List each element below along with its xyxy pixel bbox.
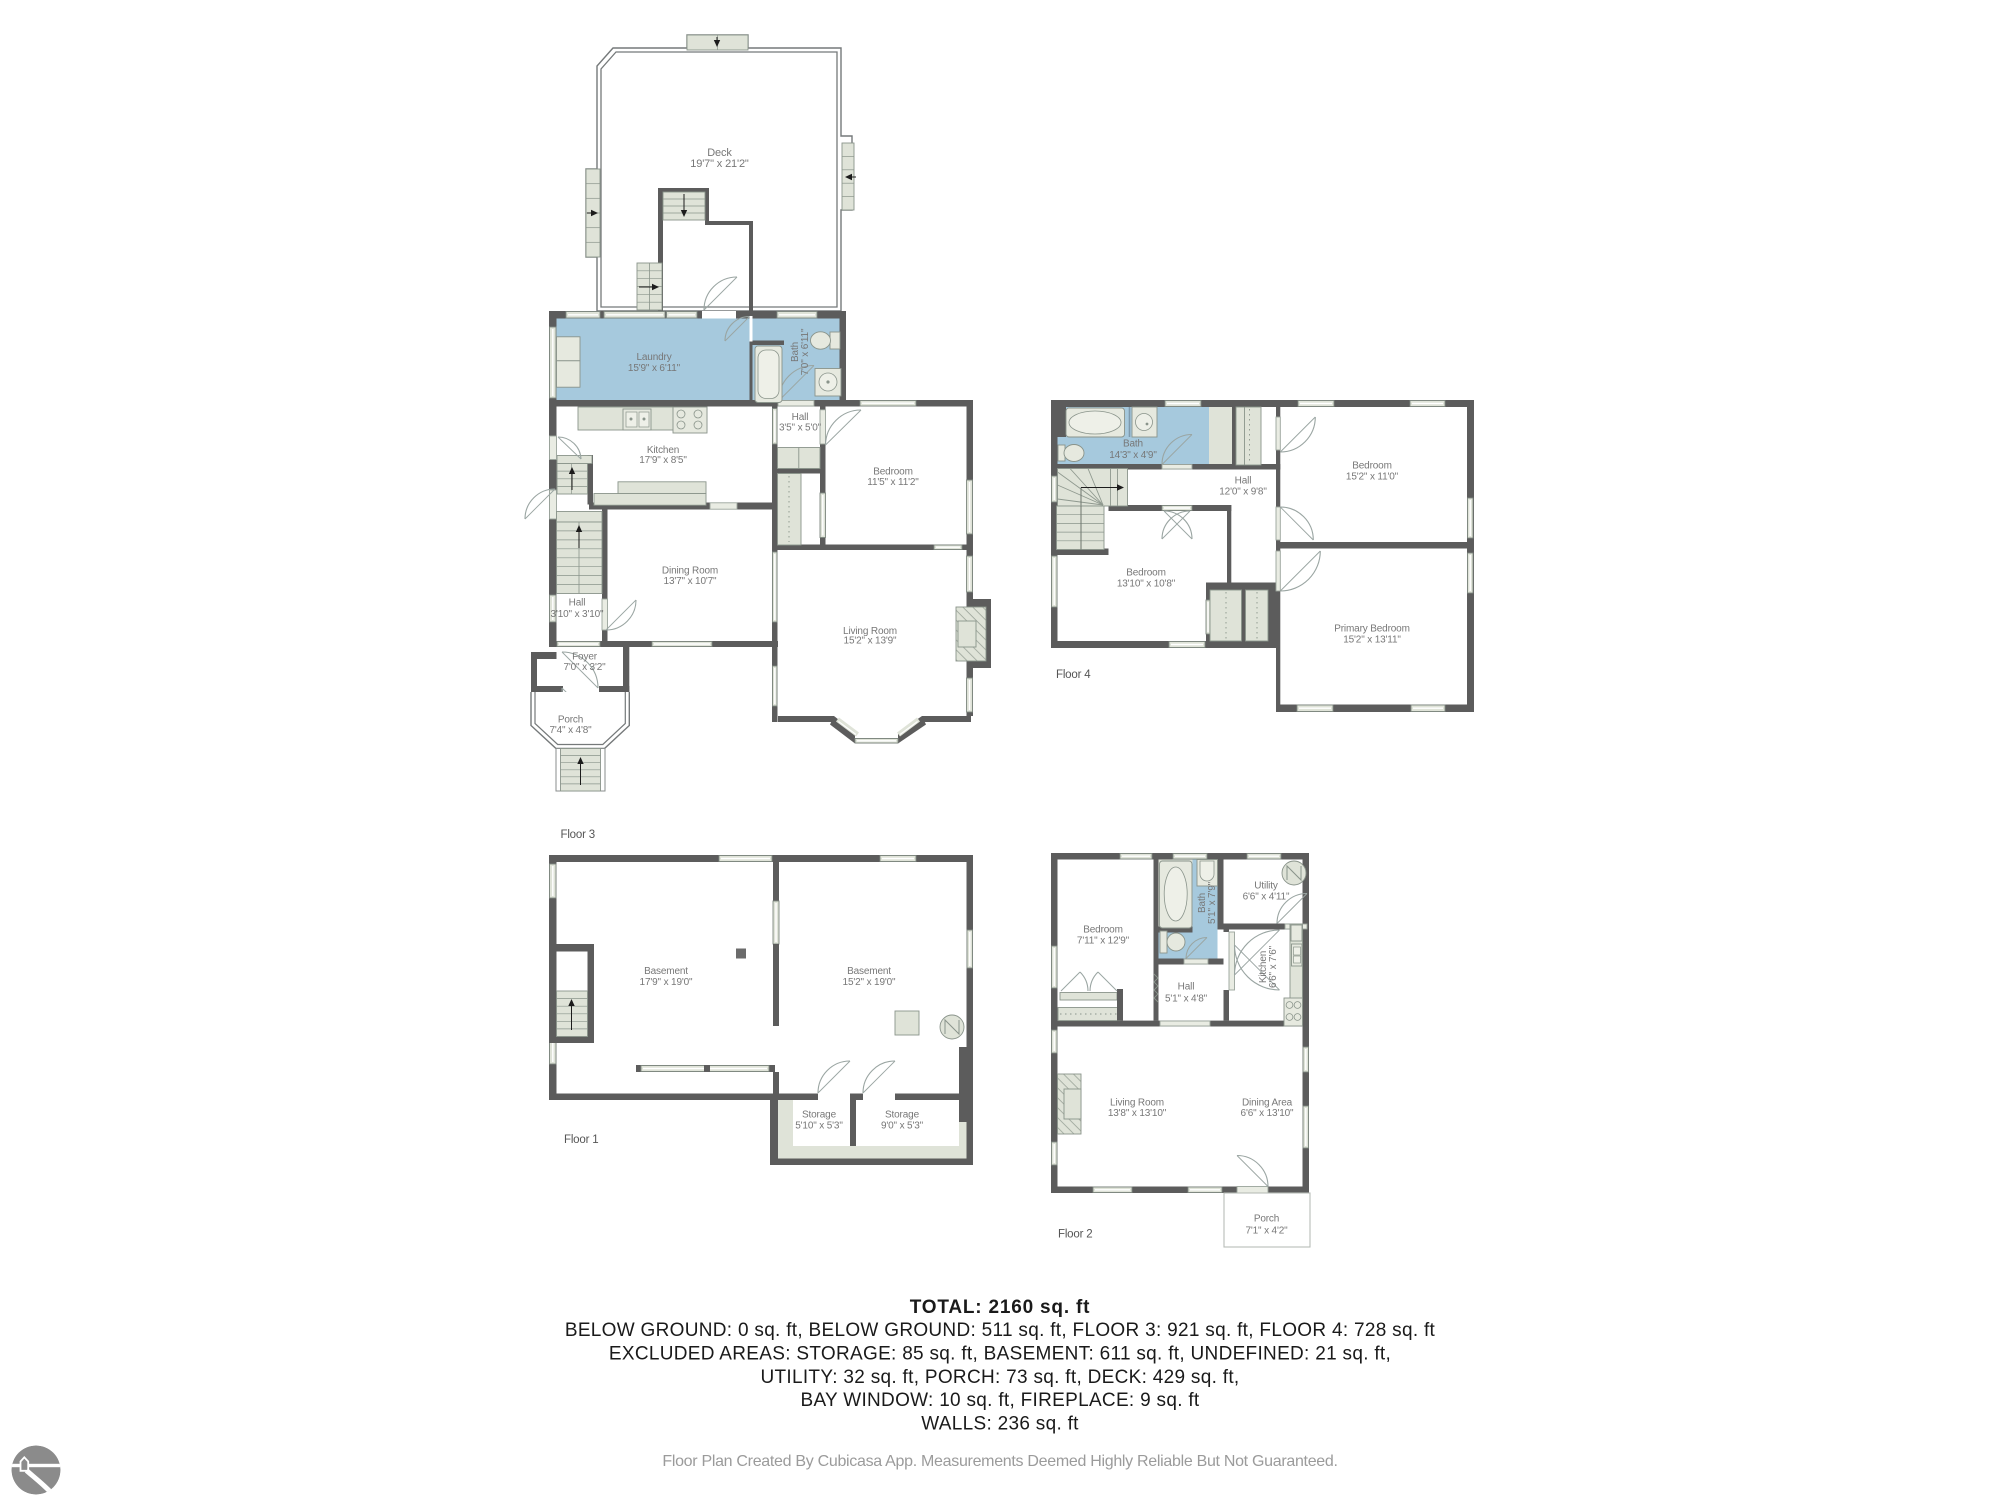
- svg-text:5'1" x 7'9": 5'1" x 7'9": [1207, 881, 1218, 924]
- svg-text:Basement: Basement: [847, 966, 891, 977]
- svg-text:7'4" x 4'8": 7'4" x 4'8": [549, 725, 592, 736]
- svg-text:14'3" x 4'9": 14'3" x 4'9": [1109, 450, 1157, 461]
- svg-text:Living Room: Living Room: [1110, 1098, 1164, 1109]
- svg-text:7'0" x 6'11": 7'0" x 6'11": [800, 328, 811, 375]
- svg-text:5'1" x 4'8": 5'1" x 4'8": [1165, 994, 1208, 1005]
- svg-text:Hall: Hall: [569, 598, 586, 609]
- svg-text:3'10" x 3'10": 3'10" x 3'10": [551, 609, 604, 620]
- svg-text:BAY WINDOW: 10 sq. ft, FIREPLA: BAY WINDOW: 10 sq. ft, FIREPLACE: 9 sq. …: [800, 1390, 1199, 1411]
- svg-text:13'7" x 10'7": 13'7" x 10'7": [664, 576, 717, 587]
- svg-text:12'0" x 9'8": 12'0" x 9'8": [1219, 487, 1267, 498]
- svg-text:Floor Plan Created By Cubicasa: Floor Plan Created By Cubicasa App. Meas…: [662, 1453, 1337, 1470]
- svg-text:7'0" x 3'2": 7'0" x 3'2": [563, 662, 606, 673]
- svg-text:Hall: Hall: [1235, 476, 1252, 487]
- svg-text:15'2" x 11'0": 15'2" x 11'0": [1346, 472, 1399, 483]
- svg-text:Primary Bedroom: Primary Bedroom: [1334, 624, 1410, 635]
- svg-text:Hall: Hall: [1178, 982, 1195, 993]
- svg-text:3'5" x 5'0": 3'5" x 5'0": [779, 423, 822, 434]
- svg-text:15'2" x 19'0": 15'2" x 19'0": [843, 977, 896, 988]
- svg-text:11'5" x 11'2": 11'5" x 11'2": [867, 477, 919, 488]
- svg-text:BELOW GROUND: 0 sq. ft, BELOW: BELOW GROUND: 0 sq. ft, BELOW GROUND: 51…: [565, 1320, 1436, 1341]
- svg-text:15'9" x 6'11": 15'9" x 6'11": [628, 363, 681, 374]
- svg-text:TOTAL: 2160 sq. ft: TOTAL: 2160 sq. ft: [910, 1297, 1091, 1318]
- svg-text:Porch: Porch: [1254, 1214, 1279, 1225]
- svg-text:15'2" x 13'9": 15'2" x 13'9": [844, 636, 897, 647]
- svg-text:Floor 4: Floor 4: [1056, 669, 1091, 681]
- svg-text:WALLS: 236 sq. ft: WALLS: 236 sq. ft: [921, 1414, 1079, 1435]
- svg-text:Storage: Storage: [885, 1110, 920, 1121]
- svg-text:17'9" x 8'5": 17'9" x 8'5": [639, 455, 687, 466]
- svg-text:7'1" x 4'2": 7'1" x 4'2": [1245, 1226, 1288, 1237]
- svg-text:19'7" x 21'2": 19'7" x 21'2": [690, 158, 749, 170]
- svg-text:Bedroom: Bedroom: [1083, 925, 1123, 936]
- svg-text:Storage: Storage: [802, 1110, 837, 1121]
- svg-text:EXCLUDED AREAS: STORAGE: 85 sq: EXCLUDED AREAS: STORAGE: 85 sq. ft, BASE…: [609, 1344, 1391, 1365]
- svg-text:9'0" x 5'3": 9'0" x 5'3": [881, 1120, 924, 1131]
- svg-text:Porch: Porch: [558, 714, 583, 725]
- svg-text:15'2" x 13'11": 15'2" x 13'11": [1343, 635, 1401, 646]
- svg-text:6'6" x 4'11": 6'6" x 4'11": [1243, 892, 1290, 903]
- svg-text:Bath: Bath: [1123, 439, 1143, 450]
- svg-text:5'10" x 5'3": 5'10" x 5'3": [795, 1120, 843, 1131]
- svg-text:6'6" x 13'10": 6'6" x 13'10": [1241, 1108, 1294, 1119]
- svg-text:17'9" x 19'0": 17'9" x 19'0": [640, 977, 693, 988]
- svg-text:Bedroom: Bedroom: [1352, 461, 1392, 472]
- svg-text:Utility: Utility: [1254, 881, 1278, 892]
- svg-text:UTILITY: 32 sq. ft, PORCH: 73: UTILITY: 32 sq. ft, PORCH: 73 sq. ft, DE…: [760, 1367, 1239, 1388]
- svg-text:Floor 3: Floor 3: [561, 829, 595, 841]
- svg-text:Floor 1: Floor 1: [564, 1134, 598, 1146]
- svg-text:7'11" x 12'9": 7'11" x 12'9": [1077, 936, 1130, 947]
- svg-text:13'8" x 13'10": 13'8" x 13'10": [1108, 1108, 1167, 1119]
- svg-text:Bedroom: Bedroom: [1126, 568, 1166, 579]
- svg-text:6'6" x 7'6": 6'6" x 7'6": [1268, 945, 1279, 988]
- svg-text:Laundry: Laundry: [636, 352, 671, 363]
- svg-text:Dining Area: Dining Area: [1242, 1098, 1293, 1109]
- svg-text:13'10" x 10'8": 13'10" x 10'8": [1117, 579, 1176, 590]
- svg-text:Basement: Basement: [644, 966, 688, 977]
- svg-text:Floor 2: Floor 2: [1058, 1229, 1092, 1241]
- svg-text:Hall: Hall: [792, 412, 809, 423]
